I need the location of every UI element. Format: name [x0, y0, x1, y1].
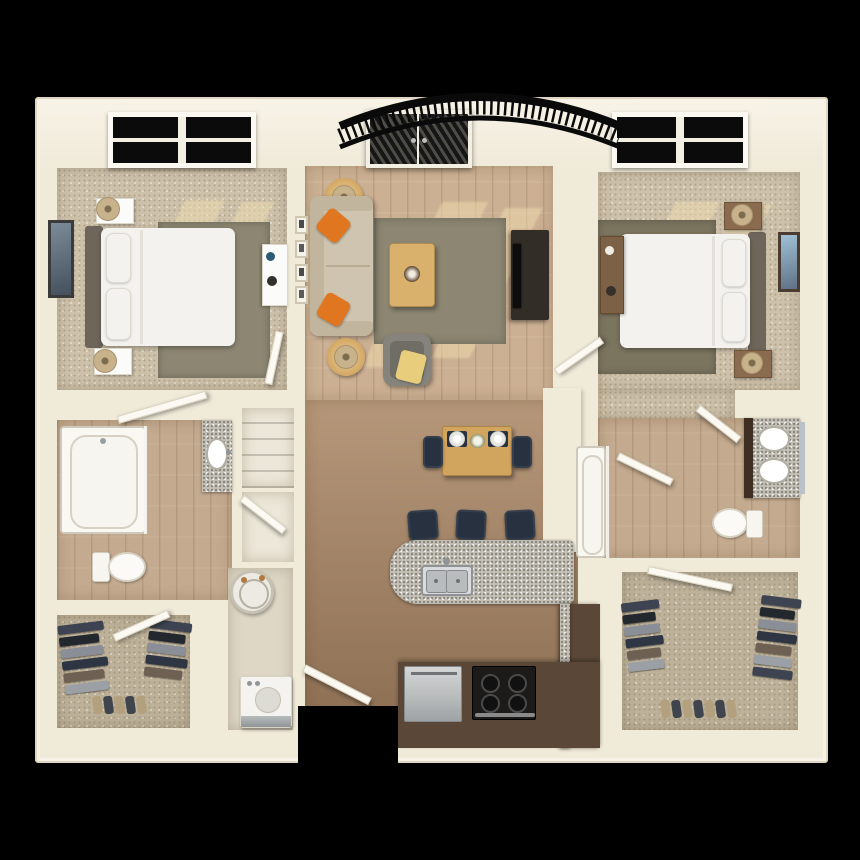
heater-pipe [259, 575, 265, 581]
bathtub-2 [576, 446, 606, 558]
toilet-2-tank [746, 510, 763, 538]
bedroom-2-lamp [741, 352, 763, 374]
burner [508, 674, 527, 693]
entry-cutout [298, 706, 398, 763]
washer-front-panel [241, 716, 291, 727]
bedroom-1-lamp [96, 197, 120, 221]
bathtub-1-glass-panel [144, 426, 148, 534]
dinner-plate [490, 431, 506, 447]
dresser-item [606, 286, 616, 296]
closet-2-shoes [660, 700, 752, 726]
bar-stool [504, 509, 536, 541]
dining-chair [423, 436, 443, 468]
sink-drain [456, 579, 460, 583]
bedroom-2-pillow [722, 292, 746, 342]
toilet-2-bowl [712, 508, 748, 538]
bathtub-1 [60, 426, 146, 534]
desk-item [266, 252, 275, 261]
washer [240, 676, 292, 728]
sofa-armrest [310, 321, 373, 336]
bedroom-2-lamp [731, 204, 753, 226]
toilet-1-bowl [108, 552, 146, 582]
kitchen-island [390, 540, 574, 604]
island-sink [421, 565, 473, 596]
desk-item [267, 276, 277, 286]
bedroom-2-wall-art [778, 232, 800, 292]
gallery-frame [295, 264, 308, 282]
sofa-cushion-split [326, 265, 370, 267]
bar-stool [455, 509, 487, 541]
bathtub-2-glass-panel [606, 446, 610, 558]
bedroom-2-duvet-fold [712, 236, 715, 346]
washer-knob [247, 681, 252, 686]
tv [513, 244, 521, 308]
sofa-armrest [310, 196, 373, 211]
gallery-frame [295, 240, 308, 258]
dishwasher [404, 666, 462, 722]
floor-plan-stage [0, 0, 860, 860]
burner [508, 694, 527, 713]
vanity-2-cabinet [744, 418, 753, 498]
coffee-table-decor [404, 266, 420, 282]
dishwasher-handle [411, 672, 457, 675]
bedroom-1-duvet-fold [140, 230, 143, 344]
bedroom-1-pillow [106, 233, 131, 283]
dinner-plate [449, 431, 465, 447]
vanity-2-sink [758, 458, 790, 484]
gallery-frame [295, 286, 308, 304]
bathtub-1-basin [70, 435, 138, 529]
gallery-frame [295, 216, 308, 234]
water-heater [230, 570, 274, 614]
bathtub-1-faucet [100, 438, 106, 444]
sink-drain [434, 579, 438, 583]
bar-stool [407, 509, 439, 541]
bedroom-1-wall-art [48, 220, 74, 298]
burner [481, 694, 500, 713]
washer-knob [255, 681, 260, 686]
vanity-2-mirror [800, 422, 805, 494]
linen-closet-floor [242, 408, 294, 488]
island-faucet [443, 558, 450, 565]
bedroom-2-headboard [748, 232, 766, 352]
bedroom-2-window [612, 112, 748, 168]
vanity-2-sink [758, 426, 790, 452]
dining-chair [512, 436, 532, 468]
vanity-1-faucet [226, 450, 231, 455]
oven-handle [475, 713, 535, 717]
bathtub-2-basin [582, 455, 603, 555]
bedroom-2-pillow [722, 239, 746, 287]
balcony-railing [330, 64, 630, 164]
washer-lid [255, 687, 281, 713]
vanity-1-sink [206, 438, 228, 470]
range [472, 666, 536, 720]
bedroom-1-window [108, 112, 256, 168]
table-centerpiece [470, 434, 485, 448]
hall-2-floor [598, 390, 735, 418]
closet-1-shoes [92, 696, 154, 722]
burner [481, 674, 500, 693]
heater-pipe [241, 577, 247, 583]
bedroom-1-lamp [93, 349, 117, 373]
living-end-table-lamp [334, 345, 358, 369]
dresser-item [605, 246, 614, 255]
bedroom-1-pillow [106, 288, 131, 340]
